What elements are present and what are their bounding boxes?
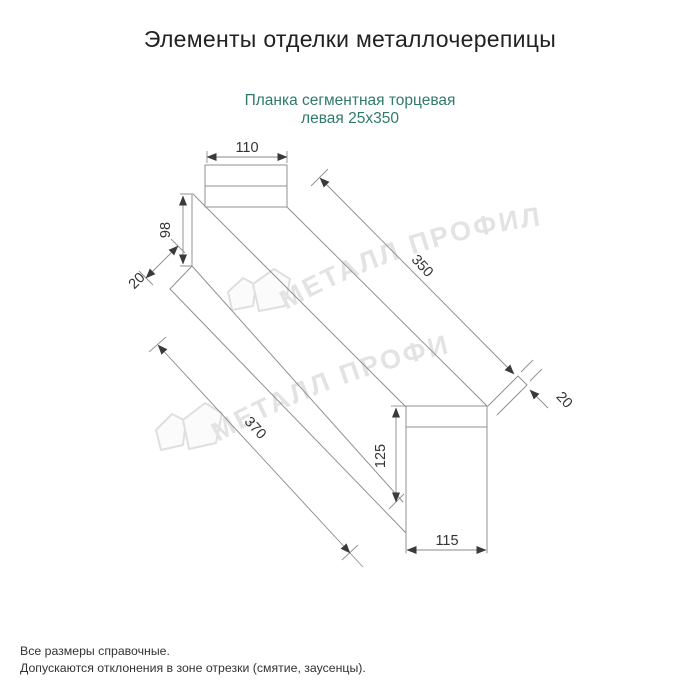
dim-label-110: 110	[235, 140, 258, 156]
watermark-text-upper-path: МЕТАЛЛ ПРОФИЛЬ	[0, 0, 544, 315]
watermark-lower: МЕТАЛЛ ПРОФИЛЬ	[0, 0, 453, 450]
dim-line-20-left	[146, 246, 178, 278]
watermark-upper: МЕТАЛЛ ПРОФИЛЬ	[0, 0, 544, 315]
watermark-text-lower: МЕТАЛЛ ПРОФИЛЬ	[0, 0, 453, 447]
watermark-text-upper: МЕТАЛЛ ПРОФИЛЬ	[0, 0, 544, 315]
dim-label-98: 98	[158, 222, 174, 238]
dimension-labels: 110 98 20 350 20 370 125 115	[126, 140, 575, 549]
footer-notes: Все размеры справочные. Допускаются откл…	[20, 643, 660, 676]
dim-label-125: 125	[373, 444, 389, 468]
dim-label-115: 115	[435, 533, 458, 549]
watermark-text-lower-path: МЕТАЛЛ ПРОФИЛЬ	[0, 0, 453, 447]
footer-note-line2: Допускаются отклонения в зоне отрезки (с…	[20, 660, 660, 677]
footer-note-line1: Все размеры справочные.	[20, 643, 660, 660]
technical-drawing: МЕТАЛЛ ПРОФИЛЬ МЕТАЛЛ ПРОФИЛЬ	[0, 0, 700, 700]
dim-label-20-left: 20	[126, 270, 149, 293]
dim-label-20-right: 20	[553, 389, 576, 412]
dim-line-20-right	[530, 390, 548, 408]
